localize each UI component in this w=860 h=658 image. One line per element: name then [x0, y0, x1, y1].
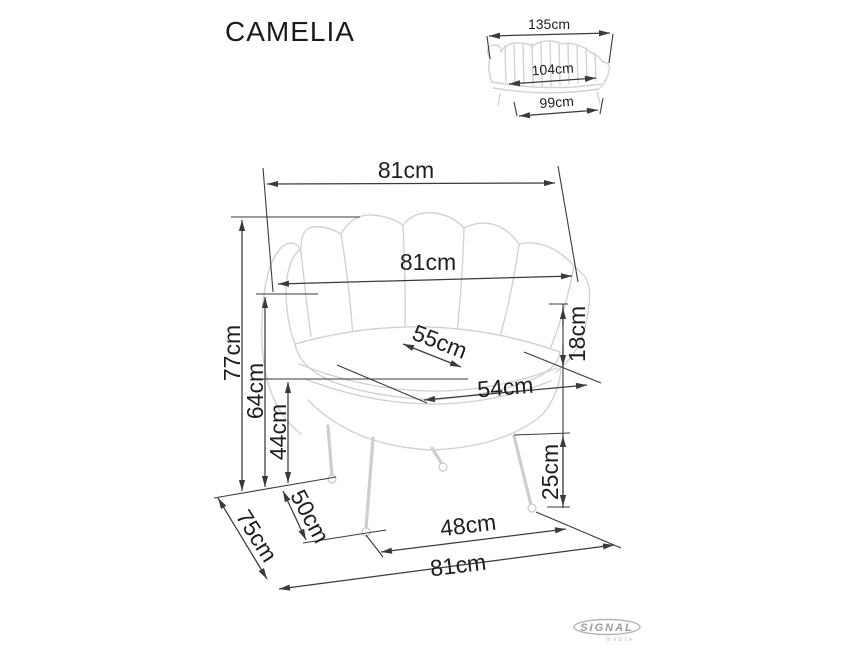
- dim-label-seat-width: 54cm: [476, 372, 534, 403]
- dim-label-leg-spacing-depth: 50cm: [285, 485, 334, 547]
- dimension-sofa-base-width: 99cm: [514, 93, 603, 116]
- sofa-left-side: [489, 58, 492, 82]
- leg-foot: [328, 475, 336, 483]
- front-right-leg: [514, 436, 531, 505]
- dimension-front-leg-spacing: 48cm: [366, 509, 621, 557]
- dimension-overall-width-base: 81cm: [279, 545, 614, 589]
- dimension-overall-depth: 75cm: [218, 498, 283, 579]
- brand-name: SIGNAL: [580, 622, 634, 634]
- leg-foot: [362, 528, 370, 536]
- dim-label-sofa-base-width: 99cm: [539, 93, 574, 111]
- dimension-sheet: CAMELIA 81cm 81cm: [0, 0, 860, 658]
- petal-seam: [497, 244, 519, 348]
- dim-label-sofa-overall-width: 135cm: [528, 16, 570, 32]
- sofa-base-edge: [493, 88, 599, 93]
- dim-label-overall-width-top: 81cm: [378, 157, 434, 183]
- dim-label-cushion-height: 18cm: [564, 306, 590, 362]
- sofa-right-side: [601, 71, 609, 87]
- dim-label-overall-width-base: 81cm: [429, 549, 488, 582]
- dim-label-backrest-width: 81cm: [400, 249, 456, 275]
- dim-label-seat-height: 44cm: [265, 404, 291, 460]
- leg-foot: [439, 463, 447, 471]
- dim-label-overall-depth: 75cm: [231, 505, 283, 566]
- sofa-seat-edge: [492, 82, 601, 88]
- petal-seam: [341, 234, 353, 338]
- petal-seam: [456, 228, 464, 342]
- back-left-leg: [328, 426, 332, 476]
- left-arm-curl: [286, 250, 299, 344]
- dim-label-leg-height: 25cm: [537, 444, 563, 500]
- dim-label-sofa-seat-width: 104cm: [531, 60, 574, 79]
- dimension-sofa-seat-width: 104cm: [509, 60, 596, 84]
- technical-drawing-canvas: CAMELIA 81cm 81cm: [0, 0, 860, 658]
- dimension-backrest-width: 81cm: [278, 249, 572, 284]
- petal-seam: [403, 225, 405, 340]
- brand-logo: SIGNAL meble: [574, 620, 640, 644]
- dim-label-front-leg-spacing: 48cm: [439, 509, 498, 542]
- page-title: CAMELIA: [225, 16, 355, 47]
- leg-foot: [528, 504, 536, 512]
- brand-subtitle: meble: [606, 637, 635, 643]
- front-left-leg: [366, 438, 373, 529]
